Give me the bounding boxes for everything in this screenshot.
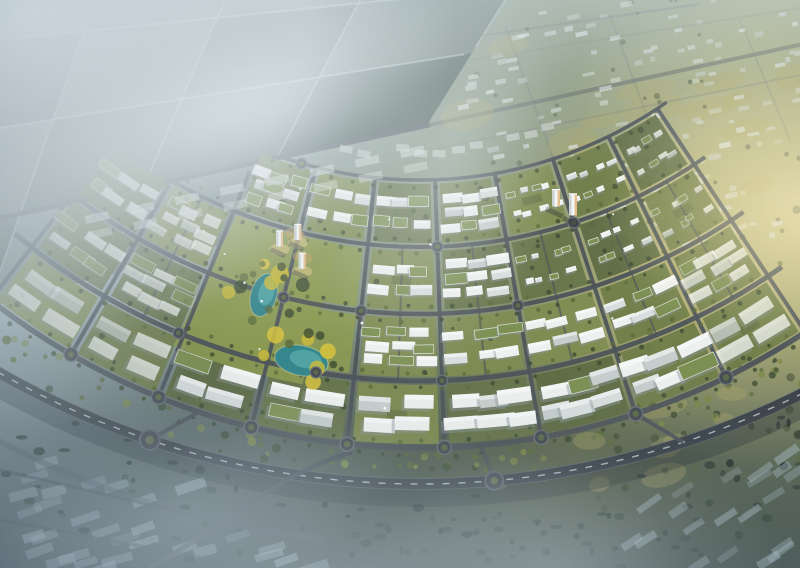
atmosphere-base-gradient [0,0,800,568]
faint-rows-bottom [0,443,800,568]
towers [269,189,580,281]
sun-glow-right [0,0,800,568]
central-park [173,215,337,384]
highway [0,334,800,568]
hazy-city-topright [430,0,800,248]
fade-edge-blocks [84,122,554,240]
fog-overlay-topleft [0,0,800,568]
fog-streak-bottomleft [0,336,437,568]
scene-canvas [0,0,800,568]
roundabouts [64,158,733,490]
haze-band-bottom [0,0,800,568]
fog-streak-center [282,0,621,415]
farmland-grid [0,0,800,497]
dark-woods-bottom [1,416,800,568]
roof-glints [203,188,614,410]
city-buildings [4,129,793,436]
street-trees [7,121,795,457]
haze-band-top [0,0,800,568]
city-blocks [0,115,799,445]
right-countryside [587,172,800,512]
aerial-masterplan-render: Aerial dusk rendering of a fan-shaped ur… [0,0,800,568]
scene-description: Aerial dusk rendering of a fan-shaped ur… [0,0,1,1]
fog-streak-topleft [0,0,498,272]
green-belt [2,336,800,491]
cool-tint-left [0,0,800,568]
street-network [0,102,800,454]
park-features [222,226,337,390]
